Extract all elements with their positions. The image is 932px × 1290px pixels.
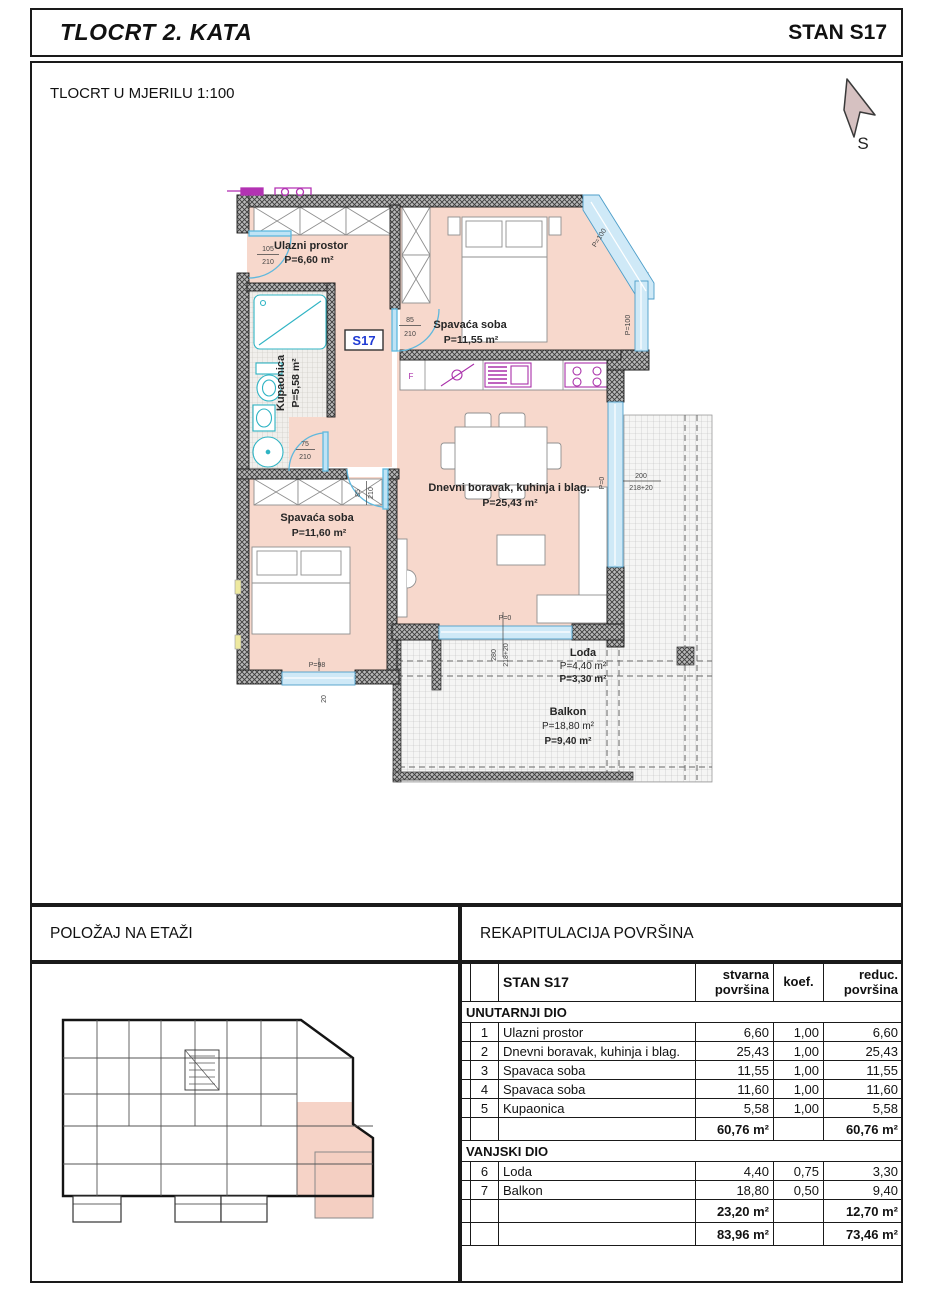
col-header-actual: stvarna površina <box>696 964 774 1002</box>
table-row: 7 Balkon18,80 0,509,40 <box>462 1181 903 1200</box>
room-area-bathroom: P=5,58 m² <box>290 358 302 408</box>
title-bar: TLOCRT 2. KATA STAN S17 <box>30 8 903 57</box>
dim-bedroom-door: 210 <box>368 487 375 499</box>
floor-plan-svg: F <box>227 187 717 787</box>
dim-window: 280 <box>491 649 498 661</box>
section-row-outer: VANJSKI DIO <box>462 1141 903 1162</box>
unit-tag: S17 <box>345 330 383 350</box>
key-plan-header: POLOŽAJ NA ETAŽI <box>30 905 460 962</box>
room-label-bathroom: Kupaonica <box>275 354 287 411</box>
room-label-bedroom-bottom: Spavaća soba <box>280 512 354 524</box>
dim-window: 200 <box>635 473 647 480</box>
dim-entrance-door: 210 <box>262 259 274 266</box>
dim-window: P=0 <box>599 477 606 490</box>
room-area-bedroom-top: P=11,55 m² <box>444 334 499 346</box>
dim-window: 218+20 <box>629 485 653 492</box>
room-area-reduced-balcony: P=9,40 m² <box>545 736 593 747</box>
wall-notch <box>235 635 241 649</box>
scale-note: TLOCRT U MJERILU 1:100 <box>50 85 235 102</box>
room-label-balcony: Balkon <box>550 706 587 718</box>
col-header-reduced: reduc. površina <box>824 964 903 1002</box>
fridge-icon: F <box>409 372 414 381</box>
table-row: 5 Kupaonica5,58 1,005,58 <box>462 1099 903 1118</box>
room-area-entrance: P=6,60 m² <box>284 254 334 266</box>
bedroom-bottom-door <box>383 469 388 509</box>
room-area-reduced-loggia: P=3,30 m² <box>560 674 608 685</box>
dim-window: P=98 <box>309 662 326 669</box>
dim-entrance-door: 105 <box>262 246 274 253</box>
room-label-living: Dnevni boravak, kuhinja i blag. <box>428 482 589 494</box>
dining-table <box>455 427 547 485</box>
dim-window: P=0 <box>499 615 512 622</box>
room-area-loggia: P=4,40 m² <box>560 661 607 672</box>
dim-bedroom-door: 85 <box>406 317 414 324</box>
tv-cabinet <box>397 539 407 617</box>
drawing-area: TLOCRT U MJERILU 1:100 S <box>30 61 903 905</box>
key-plan-panel <box>30 962 460 1283</box>
room-label-bedroom-top: Spavaća soba <box>433 319 507 331</box>
unit-tag-label: S17 <box>352 333 375 348</box>
sofa <box>579 487 607 599</box>
total-row: 83,96 m² 73,46 m² <box>462 1223 903 1246</box>
bedroom-top-door <box>392 309 397 351</box>
north-label: S <box>857 134 868 153</box>
kitchen-counter: F <box>400 360 621 390</box>
dim-bedroom-door: 210 <box>404 331 416 338</box>
dim-window: 20 <box>321 695 328 703</box>
nightstand <box>549 217 561 235</box>
room-area-bedroom-bottom: P=11,60 m² <box>292 527 347 539</box>
electrical-symbols-icon <box>227 188 311 196</box>
section-row-inner: UNUTARNJI DIO <box>462 1002 903 1023</box>
table-header-row: STAN S17 stvarna površina koef. reduc. p… <box>462 964 903 1002</box>
apartment-id: STAN S17 <box>788 21 901 45</box>
key-plan-highlight-balcony <box>315 1152 373 1218</box>
key-plan-balconies <box>73 1196 267 1222</box>
nightstand <box>448 217 460 235</box>
dim-window: 218+20 <box>503 643 510 667</box>
table-row: 3 Spavaca soba11,55 1,0011,55 <box>462 1061 903 1080</box>
recap-title: REKAPITULACIJA POVRŠINA <box>480 925 694 943</box>
table-row: 1 Ulazni prostor6,60 1,006,60 <box>462 1023 903 1042</box>
page-title: TLOCRT 2. KATA <box>32 19 252 46</box>
recap-header: REKAPITULACIJA POVRŠINA <box>460 905 903 962</box>
room-label-loggia: Lođa <box>570 647 597 659</box>
room-area-living: P=25,43 m² <box>482 497 538 509</box>
sofa <box>537 595 607 623</box>
subtotal-row-inner: 60,76 m² 60,76 m² <box>462 1118 903 1141</box>
col-header-name: STAN S17 <box>499 964 696 1002</box>
dim-bedroom-door: 85 <box>355 489 362 497</box>
recap-table: STAN S17 stvarna površina koef. reduc. p… <box>461 963 903 1246</box>
room-area-balcony: P=18,80 m² <box>542 721 595 732</box>
entrance-door <box>249 231 291 236</box>
north-arrow-icon: S <box>819 73 879 157</box>
recap-panel: STAN S17 stvarna površina koef. reduc. p… <box>460 962 903 1283</box>
room-label-entrance: Ulazni prostor <box>274 240 349 252</box>
coffee-table <box>497 535 545 565</box>
wall-notch <box>235 580 241 594</box>
dim-bathroom-door: 210 <box>299 454 311 461</box>
table-row: 4 Spavaca soba11,60 1,0011,60 <box>462 1080 903 1099</box>
bathroom-door <box>323 432 328 471</box>
col-header-coef: koef. <box>774 964 824 1002</box>
plan-sheet: TLOCRT 2. KATA STAN S17 TLOCRT U MJERILU… <box>0 0 932 1290</box>
dim-window: P=100 <box>625 315 632 336</box>
key-plan-svg <box>57 1006 402 1250</box>
subtotal-row-outer: 23,20 m² 12,70 m² <box>462 1200 903 1223</box>
table-row: 2 Dnevni boravak, kuhinja i blag.25,43 1… <box>462 1042 903 1061</box>
key-plan-title: POLOŽAJ NA ETAŽI <box>50 925 193 943</box>
dim-bathroom-door: 75 <box>301 441 309 448</box>
table-row: 6 Loda4,40 0,753,30 <box>462 1162 903 1181</box>
